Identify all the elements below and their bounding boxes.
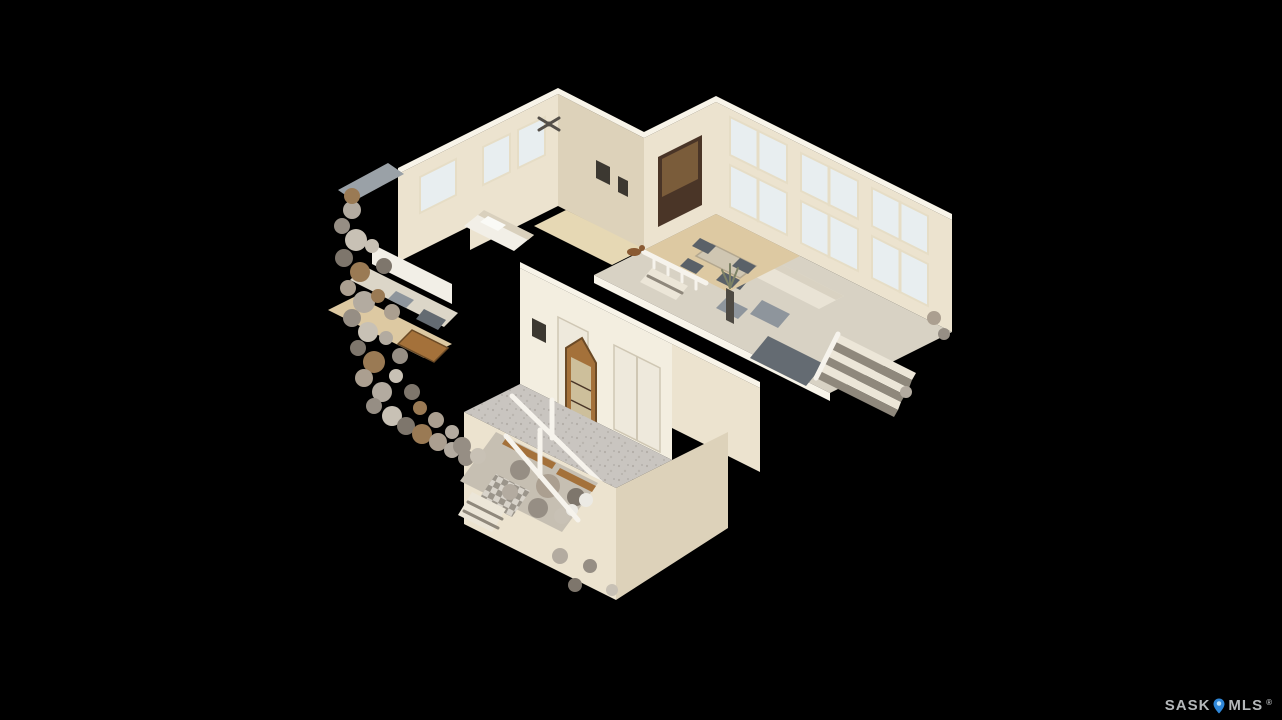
bedroom-wing xyxy=(338,88,645,265)
watermark-text-sask: SASK xyxy=(1165,697,1211,714)
dollhouse-3d-view xyxy=(0,0,1282,720)
viewer-canvas: SASK MLS ® xyxy=(0,0,1282,720)
registered-trademark-symbol: ® xyxy=(1266,698,1272,707)
sask-mls-watermark: SASK MLS ® xyxy=(1165,697,1272,714)
watermark-text-mls: MLS xyxy=(1228,697,1263,714)
location-pin-icon xyxy=(1213,698,1225,714)
